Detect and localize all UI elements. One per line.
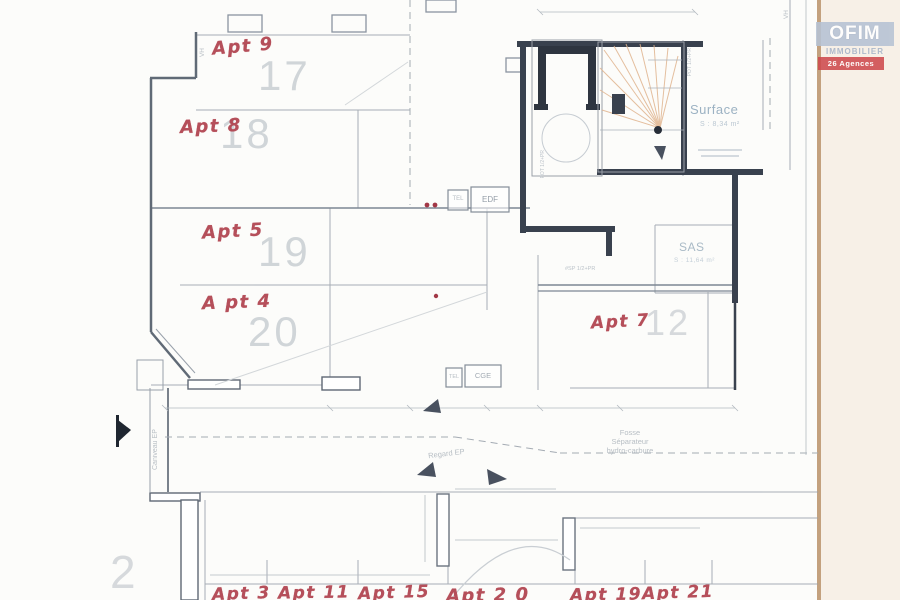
room-number-12: 12 — [645, 302, 691, 344]
annotation-apt20: Apt 2 0 — [446, 584, 530, 600]
room-number-20: 20 — [248, 308, 301, 356]
fosse-line3: hydro-carbure — [595, 446, 665, 455]
ofim-logo-brand: OFIM — [816, 22, 894, 46]
annotation-apt19: Apt 19 — [570, 584, 642, 600]
annotation-apt7: Apt 7 — [591, 310, 651, 333]
surface-area-label: S : 8,34 m² — [700, 121, 740, 128]
scanned-floor-plan: 17 18 19 20 12 2 Apt 9 Apt 8 Apt 5 A pt … — [0, 0, 900, 600]
fosse-line1: Fosse — [595, 428, 665, 437]
ofim-logo-subtitle: IMMOBILIER — [816, 46, 894, 57]
room-number-17: 17 — [258, 52, 311, 100]
annotation-apt8: Apt 8 — [180, 115, 242, 138]
fosse-separator-label: Fosse Séparateur hydro-carbure — [595, 428, 665, 455]
ofim-logo-badge: 26 Agences — [818, 57, 884, 70]
tel2-meter-label: TEL — [446, 374, 462, 380]
sas-area-label: S : 11,64 m² — [674, 257, 715, 264]
edf-meter-label: EDF — [471, 195, 509, 204]
caniveau-ep-label: Caniveau EP — [152, 400, 159, 470]
fosse-line2: Séparateur — [595, 437, 665, 446]
annotation-apt11: Apt 11 — [278, 582, 350, 600]
annotation-apt21: Apt 21 — [642, 582, 715, 600]
fine-print-line — [701, 155, 739, 157]
sp-label: #SP 1/2+PR — [565, 266, 595, 272]
vh-left-label: VH — [199, 48, 206, 57]
sas-label: SAS — [679, 240, 705, 254]
floor-plan-linework — [0, 0, 900, 600]
tel-meter-label: TEL — [448, 196, 468, 202]
pot-label-stair: POT 1/2+PR — [687, 48, 693, 76]
annotation-apt4: A pt 4 — [202, 291, 272, 314]
annotation-apt15: Apt 15 — [358, 582, 431, 600]
annotation-apt3: Apt 3 — [212, 583, 271, 600]
ofim-logo: OFIM IMMOBILIER 26 Agences — [816, 22, 894, 70]
pot-label-shaft: POT 1/2+PR — [540, 150, 546, 178]
surface-label: Surface — [690, 102, 738, 117]
room-number-2: 2 — [110, 545, 139, 599]
room-number-19: 19 — [258, 228, 311, 276]
cge-meter-label: CGE — [465, 371, 501, 380]
annotation-apt5: Apt 5 — [201, 219, 264, 243]
fine-print-line — [698, 149, 742, 151]
vh-right-label: VH — [783, 10, 790, 19]
